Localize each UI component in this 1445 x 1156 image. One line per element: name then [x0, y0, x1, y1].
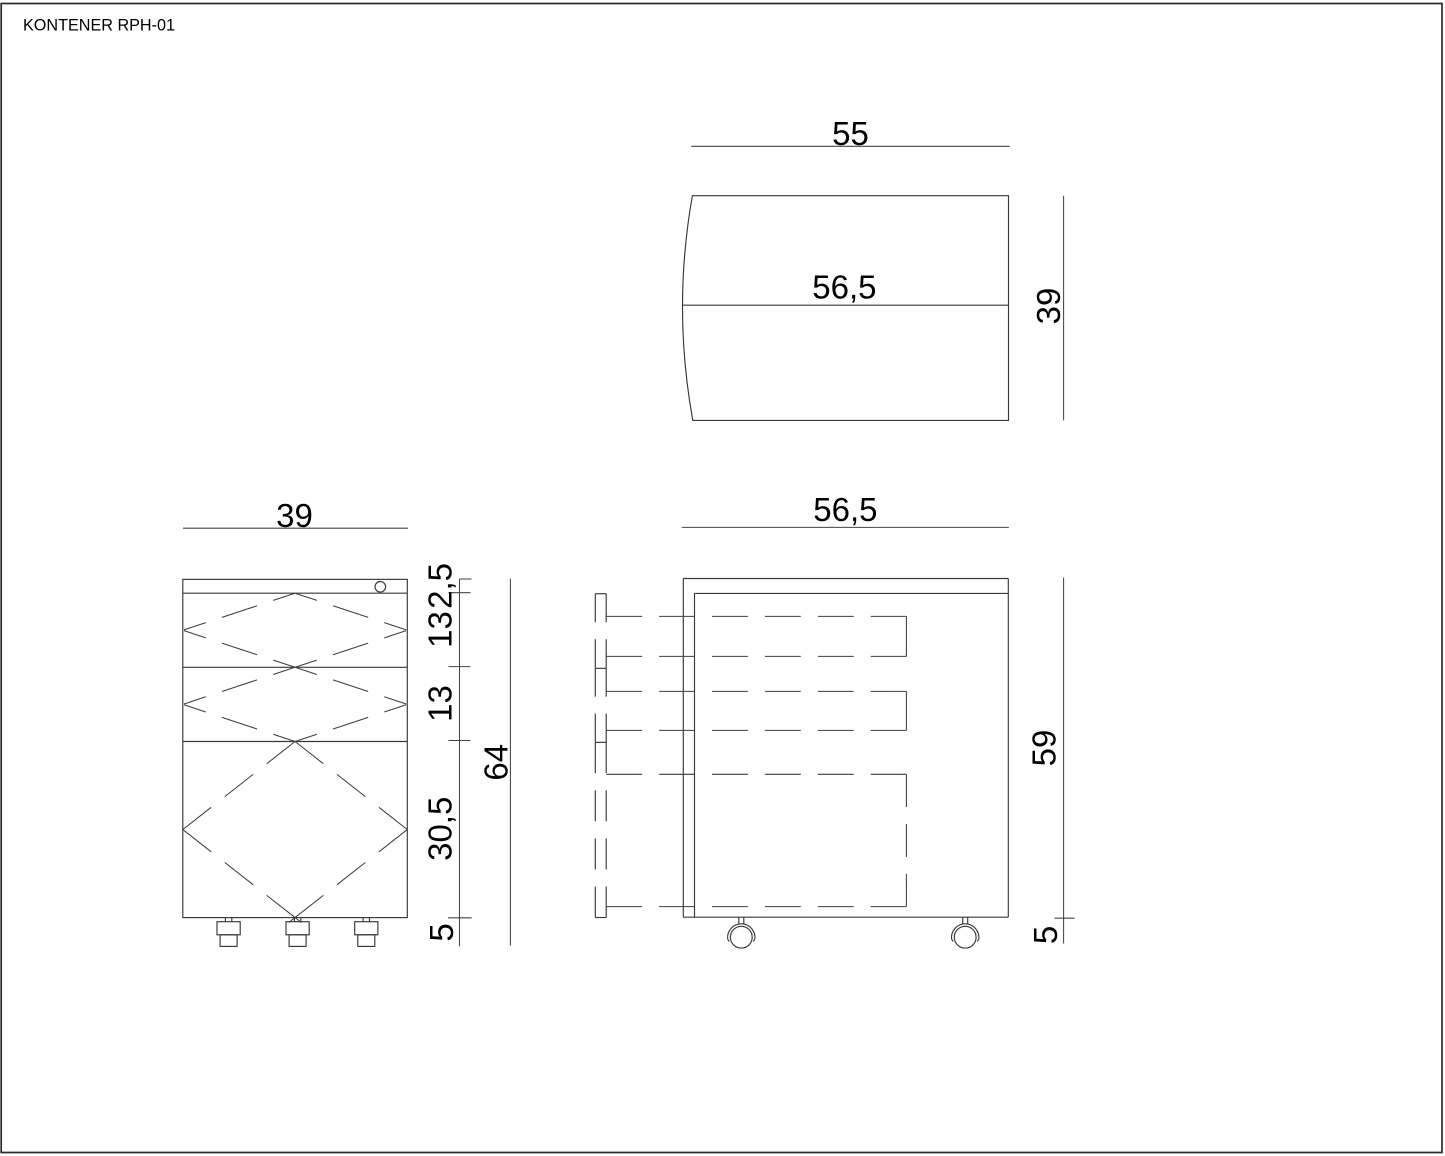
svg-text:55: 55 [832, 115, 869, 152]
svg-text:2,5: 2,5 [422, 563, 459, 609]
svg-text:30,5: 30,5 [422, 797, 459, 861]
svg-text:5: 5 [423, 923, 460, 941]
svg-text:56,5: 56,5 [812, 268, 876, 305]
svg-text:56,5: 56,5 [813, 491, 877, 528]
svg-text:39: 39 [276, 497, 313, 534]
svg-text:13: 13 [422, 611, 459, 648]
svg-text:59: 59 [1026, 730, 1063, 767]
svg-text:KONTENER RPH-01: KONTENER RPH-01 [23, 17, 175, 35]
svg-text:13: 13 [422, 685, 459, 722]
svg-text:64: 64 [478, 744, 515, 781]
svg-text:5: 5 [1027, 926, 1064, 944]
svg-text:39: 39 [1030, 288, 1067, 325]
